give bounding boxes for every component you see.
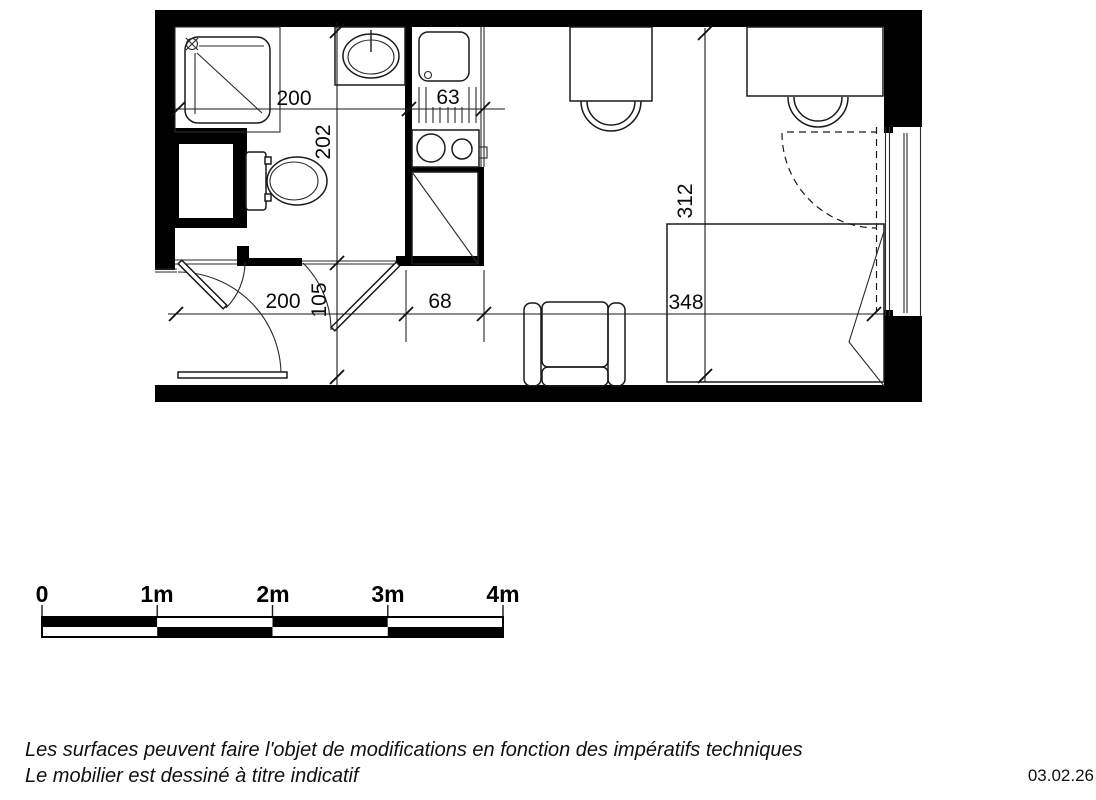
fridge-cabinet bbox=[412, 172, 478, 264]
sink-drain bbox=[425, 72, 432, 79]
floor-plan-drawing: 200 63 202 105 200 68 348 312 0 1m 2m 3m… bbox=[0, 0, 1096, 800]
wall-bottom bbox=[155, 385, 922, 402]
toilet bbox=[246, 152, 327, 210]
entry-door bbox=[155, 269, 287, 378]
dimension-annotations: 200 63 202 105 200 68 348 312 bbox=[168, 22, 884, 385]
chair-right bbox=[788, 97, 848, 127]
window-swing-arc bbox=[782, 133, 877, 228]
desk-right bbox=[747, 27, 883, 96]
toilet-hinge-top bbox=[265, 157, 271, 164]
wall-top bbox=[155, 10, 922, 27]
fridge-side-wall bbox=[478, 167, 484, 265]
dim-entry-width: 200 bbox=[265, 290, 300, 313]
wall-left bbox=[155, 10, 175, 270]
hob-burner-small bbox=[452, 139, 472, 159]
scale-label-4m: 4m bbox=[486, 581, 519, 607]
armchair-right-armrest bbox=[608, 303, 625, 386]
toilet-hinge-bottom bbox=[265, 194, 271, 201]
bathroom-door-leaf bbox=[331, 262, 400, 331]
dim-living-width: 348 bbox=[668, 291, 703, 314]
doors bbox=[155, 260, 400, 378]
dim-kitchen-width: 63 bbox=[436, 86, 459, 109]
duct-opening bbox=[179, 144, 233, 218]
toilet-tank bbox=[246, 152, 266, 210]
kitchen-sink bbox=[419, 32, 469, 81]
scale-label-2m: 2m bbox=[256, 581, 289, 607]
dim-kitchen-passage: 68 bbox=[428, 290, 451, 313]
scale-label-0: 0 bbox=[36, 581, 49, 607]
armchair-seat bbox=[542, 367, 608, 386]
entry-door-leaf bbox=[178, 372, 287, 378]
dim-living-depth: 312 bbox=[674, 183, 697, 218]
dim-bathroom-width: 200 bbox=[276, 87, 311, 110]
entry-door-swing-arc bbox=[178, 272, 281, 375]
footnotes: Les surfaces peuvent faire l'objet de mo… bbox=[25, 739, 1094, 787]
closet-door-leaf bbox=[178, 260, 227, 309]
footnote-line-1: Les surfaces peuvent faire l'objet de mo… bbox=[25, 739, 803, 761]
kitchenette bbox=[412, 27, 487, 264]
scale-bar: 0 1m 2m 3m 4m bbox=[36, 581, 520, 637]
wall-pier bbox=[237, 246, 249, 266]
wall-right-lower bbox=[884, 316, 922, 402]
dim-bathroom-depth: 202 bbox=[312, 124, 335, 159]
hob-burner-large bbox=[417, 134, 445, 162]
armchair-left-armrest bbox=[524, 303, 541, 386]
wall-bathroom-bottom bbox=[247, 258, 302, 266]
footnote-line-2: Le mobilier est dessiné à titre indicati… bbox=[25, 765, 361, 787]
living-room bbox=[524, 27, 884, 386]
scale-bar-checker bbox=[42, 617, 503, 637]
armchair-back bbox=[542, 302, 608, 367]
revision-date: 03.02.26 bbox=[1028, 766, 1094, 785]
armchair bbox=[524, 302, 625, 386]
desk-left bbox=[570, 27, 652, 101]
wall-right-upper bbox=[884, 10, 922, 127]
scale-label-1m: 1m bbox=[140, 581, 173, 607]
counter-handle bbox=[479, 147, 487, 158]
wall-bathroom-kitchen-partition bbox=[405, 27, 412, 266]
chair-left bbox=[581, 101, 641, 131]
dim-hallway-depth: 105 bbox=[308, 282, 331, 317]
closet-door bbox=[175, 260, 245, 309]
scale-label-3m: 3m bbox=[371, 581, 404, 607]
washbasin bbox=[335, 27, 405, 85]
